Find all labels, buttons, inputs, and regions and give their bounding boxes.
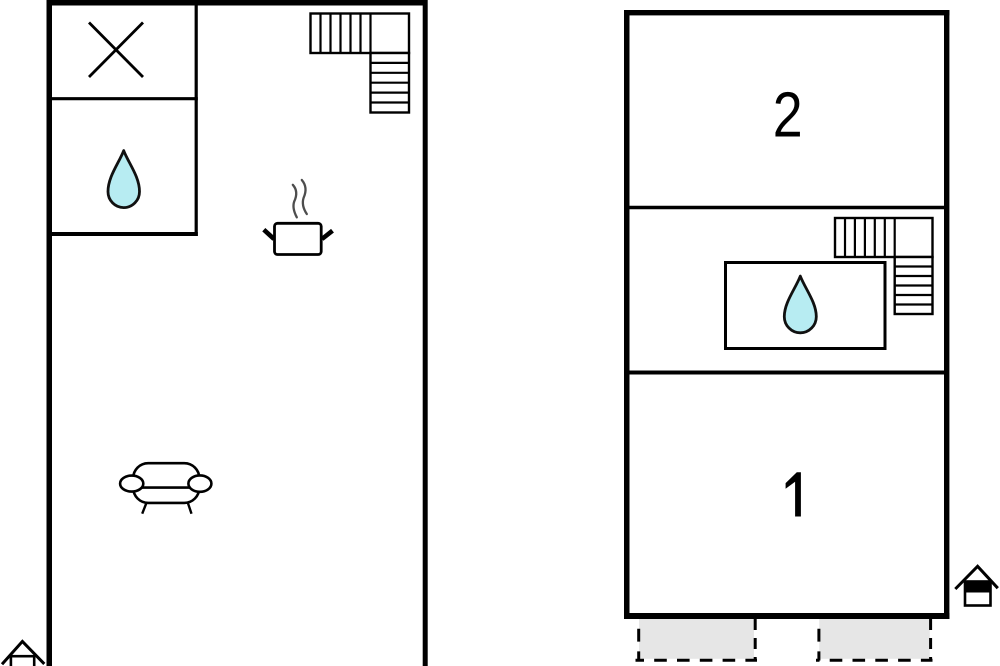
svg-text:2: 2: [773, 78, 803, 151]
